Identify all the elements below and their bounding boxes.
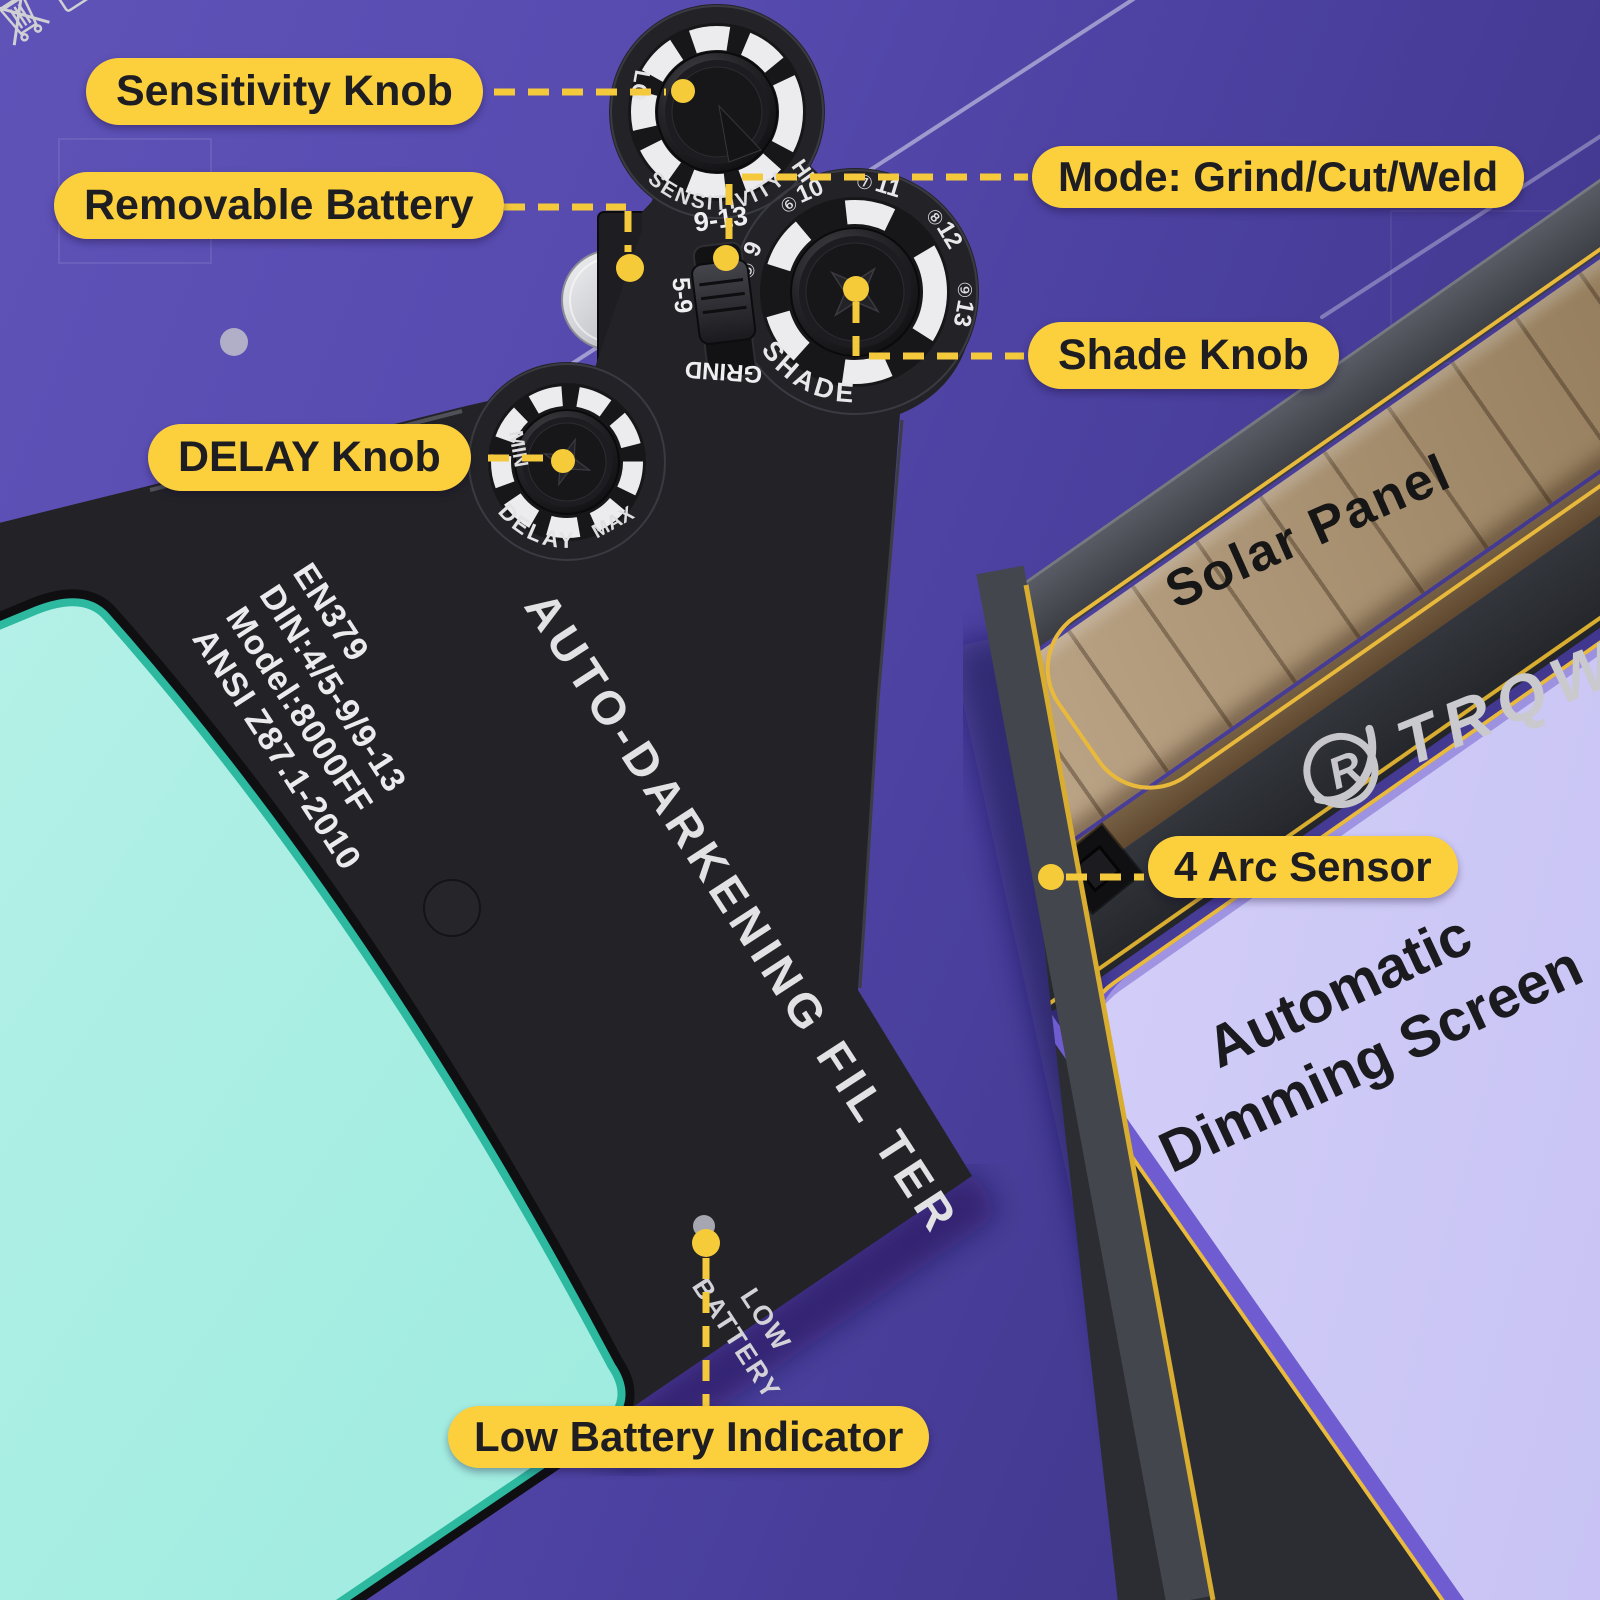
callout-removable-battery: Removable Battery [54,172,504,239]
sensitivity-lo-label: LO [625,68,655,102]
mode-low-label: 5-9 [666,276,697,314]
shade-scale-circled-9: ⑨ [953,281,974,298]
frame-hinge-tab [424,880,480,936]
delay-knob: MIN MAX DELAY [493,396,638,553]
mode-grind-label: GRIND [684,355,763,387]
callout-sensitivity-knob: Sensitivity Knob [86,58,483,125]
callout-arc-sensor: 4 Arc Sensor [1148,836,1458,898]
callout-mode: Mode: Grind/Cut/Weld [1032,146,1524,208]
shade-scale-13: 13 [948,298,980,329]
callout-delay-knob: DELAY Knob [148,424,471,491]
callout-low-battery-indicator: Low Battery Indicator [448,1406,929,1468]
product-infographic: Solar Panel Automatic Dimming Screen R T… [0,0,1600,1600]
mode-slider-handle [691,259,756,345]
shade-scale-circled-7: ⑦ [855,172,874,194]
callout-shade-knob: Shade Knob [1028,322,1339,389]
low-battery-led [693,1215,715,1237]
